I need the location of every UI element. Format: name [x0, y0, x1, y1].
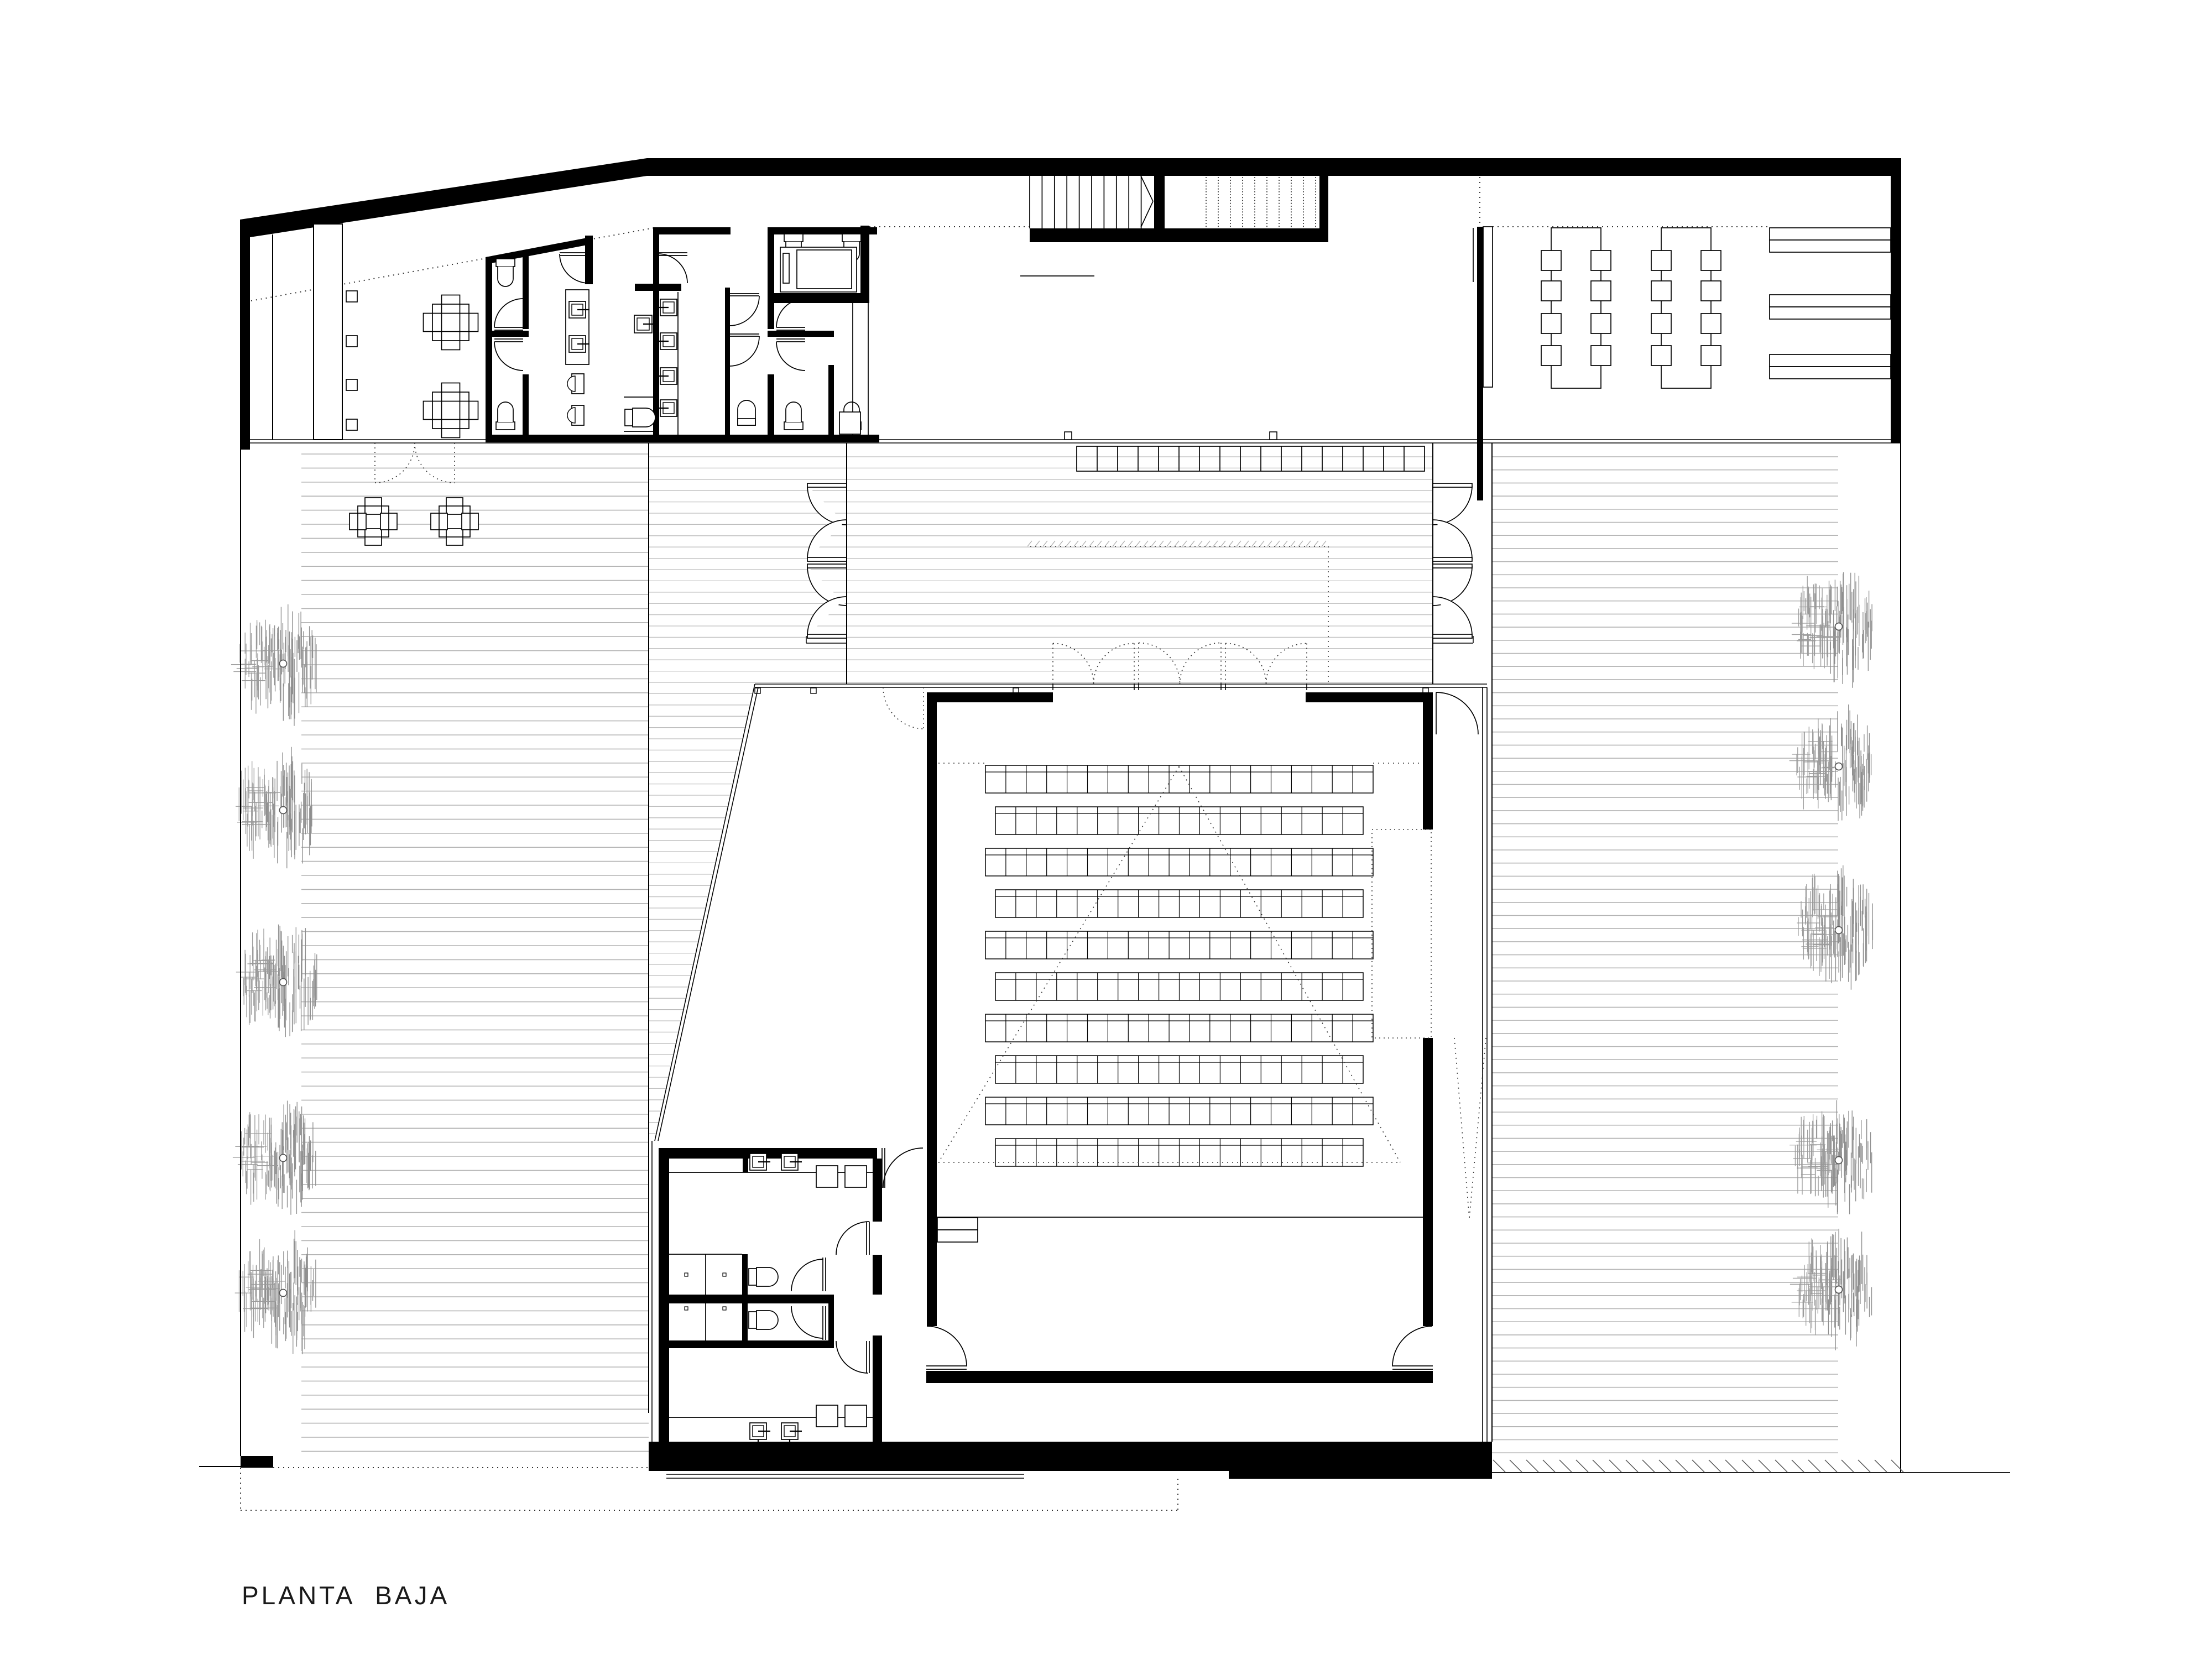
svg-text:PLANTA BAJA: PLANTA BAJA	[242, 1581, 450, 1610]
